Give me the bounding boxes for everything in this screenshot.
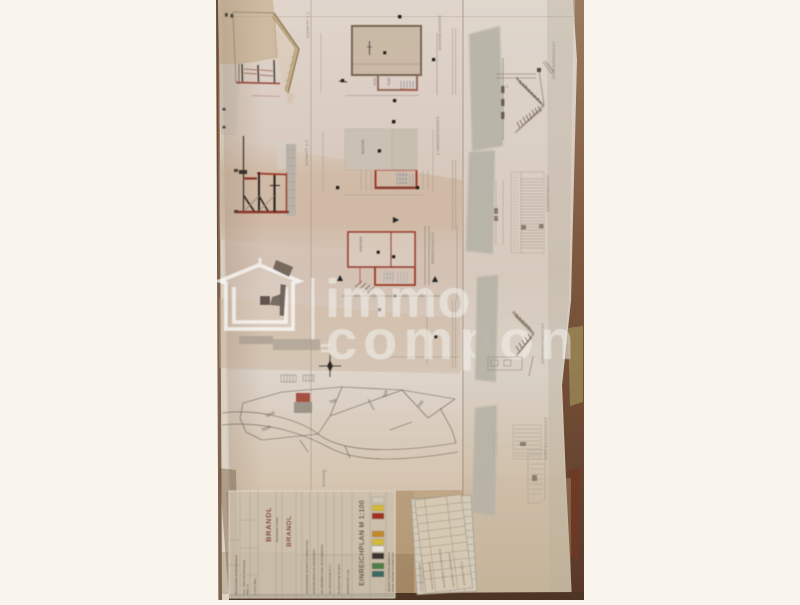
svg-text:SUEDOSTANSICHT: SUEDOSTANSICHT [546, 174, 550, 212]
svg-text:12: 12 [524, 84, 528, 88]
svg-text:SCHNITT 2-2: SCHNITT 2-2 [305, 140, 309, 166]
svg-text:DACHGESCHOSS: DACHGESCHOSS [438, 15, 442, 50]
svg-text:ERDGESCHOSS: ERDGESCHOSS [431, 232, 435, 264]
svg-text:KANAL WASSER STROM GAS: KANAL WASSER STROM GAS [391, 552, 395, 592]
svg-text:Bauvorhaben Einfamilienhaus: Bauvorhaben Einfamilienhaus [234, 555, 238, 595]
svg-text:Wien 11: Wien 11 [246, 584, 250, 595]
svg-text:Simmering: Simmering [322, 470, 326, 487]
svg-text:BAUWERBER FAM. MUSTERMANN: BAUWERBER FAM. MUSTERMANN [320, 544, 324, 594]
svg-text:A-1110 Wien: A-1110 Wien [253, 578, 257, 595]
svg-text:+2,50: +2,50 [373, 77, 377, 86]
svg-text:EINFAMILIENHAUS MASSIVBAU: EINFAMILIENHAUS MASSIVBAU [312, 549, 316, 594]
svg-text:+2,80: +2,80 [387, 77, 391, 86]
svg-text:EINREICHPLAN M 1:100: EINREICHPLAN M 1:100 [359, 500, 366, 586]
svg-text:17: 17 [505, 84, 509, 88]
svg-text:BRANDL: BRANDL [286, 515, 293, 547]
svg-text:BALKON: BALKON [361, 139, 365, 154]
svg-text:GZ 2013-044 BLATT 1: GZ 2013-044 BLATT 1 [328, 564, 332, 594]
svg-text:BRANDL: BRANDL [264, 507, 273, 542]
svg-text:SCHNITT 1-1: SCHNITT 1-1 [306, 12, 310, 38]
svg-text:NORDOSTANSICHT: NORDOSTANSICHT [552, 41, 556, 79]
svg-text:WOHNEN: WOHNEN [359, 236, 363, 252]
svg-text:MASSSTAB 1:100: MASSSTAB 1:100 [346, 569, 350, 594]
svg-text:SUEDWESTANSICHT: SUEDWESTANSICHT [544, 416, 548, 460]
svg-text:NORDWESTANSICHT: NORDWESTANSICHT [541, 323, 545, 364]
svg-text:Baumeister GmbH: Baumeister GmbH [275, 517, 279, 542]
svg-text:GRUNDRISSE SCHNITTE ANSICHTEN: GRUNDRISSE SCHNITTE ANSICHTEN [305, 540, 309, 594]
svg-text:PLANDATUM 10.2013: PLANDATUM 10.2013 [337, 564, 341, 594]
svg-text:1.OBERGESCHOSS: 1.OBERGESCHOSS [436, 116, 440, 155]
